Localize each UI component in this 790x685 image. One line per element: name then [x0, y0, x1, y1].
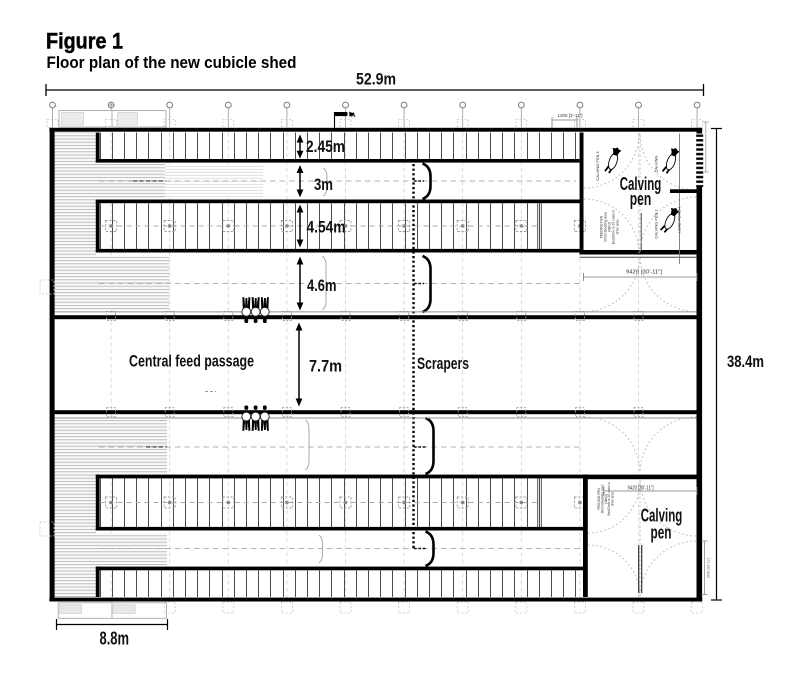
svg-text:Figure 1: Figure 1 [46, 29, 123, 54]
svg-text:drive area: drive area [611, 492, 615, 506]
svg-text:CALVING: CALVING [654, 156, 659, 173]
svg-text:A: A [351, 112, 356, 119]
svg-text:Floor plan of the new cubicle: Floor plan of the new cubicle shed [47, 54, 297, 72]
svg-text:Scrapers: Scrapers [417, 354, 469, 373]
svg-text:2.45m: 2.45m [306, 137, 345, 156]
svg-text:1300 [3’-11"]: 1300 [3’-11"] [558, 113, 583, 118]
svg-text:7.7m: 7.7m [309, 357, 342, 376]
svg-text:drive area: drive area [616, 220, 620, 235]
svg-text:CALVING PEN 2: CALVING PEN 2 [654, 209, 659, 238]
svg-text:pen: pen [630, 189, 652, 209]
svg-text:pen: pen [651, 523, 672, 543]
svg-text:LOAD PORCH: LOAD PORCH [677, 207, 682, 233]
svg-text:3m: 3m [314, 175, 333, 194]
svg-text:8.8m: 8.8m [100, 628, 130, 648]
svg-text:52.9m: 52.9m [356, 70, 396, 89]
svg-text:4.6m: 4.6m [307, 276, 337, 295]
svg-text:38.4m: 38.4m [727, 352, 764, 371]
svg-text:4.54m: 4.54m [307, 218, 346, 237]
svg-text:CALVING PEN 3: CALVING PEN 3 [595, 151, 600, 180]
svg-text:9420 [30’-11"]: 9420 [30’-11"] [707, 558, 711, 578]
svg-text:9420 [30’-11"]: 9420 [30’-11"] [626, 270, 663, 276]
svg-text:Central feed passage: Central feed passage [129, 353, 254, 371]
